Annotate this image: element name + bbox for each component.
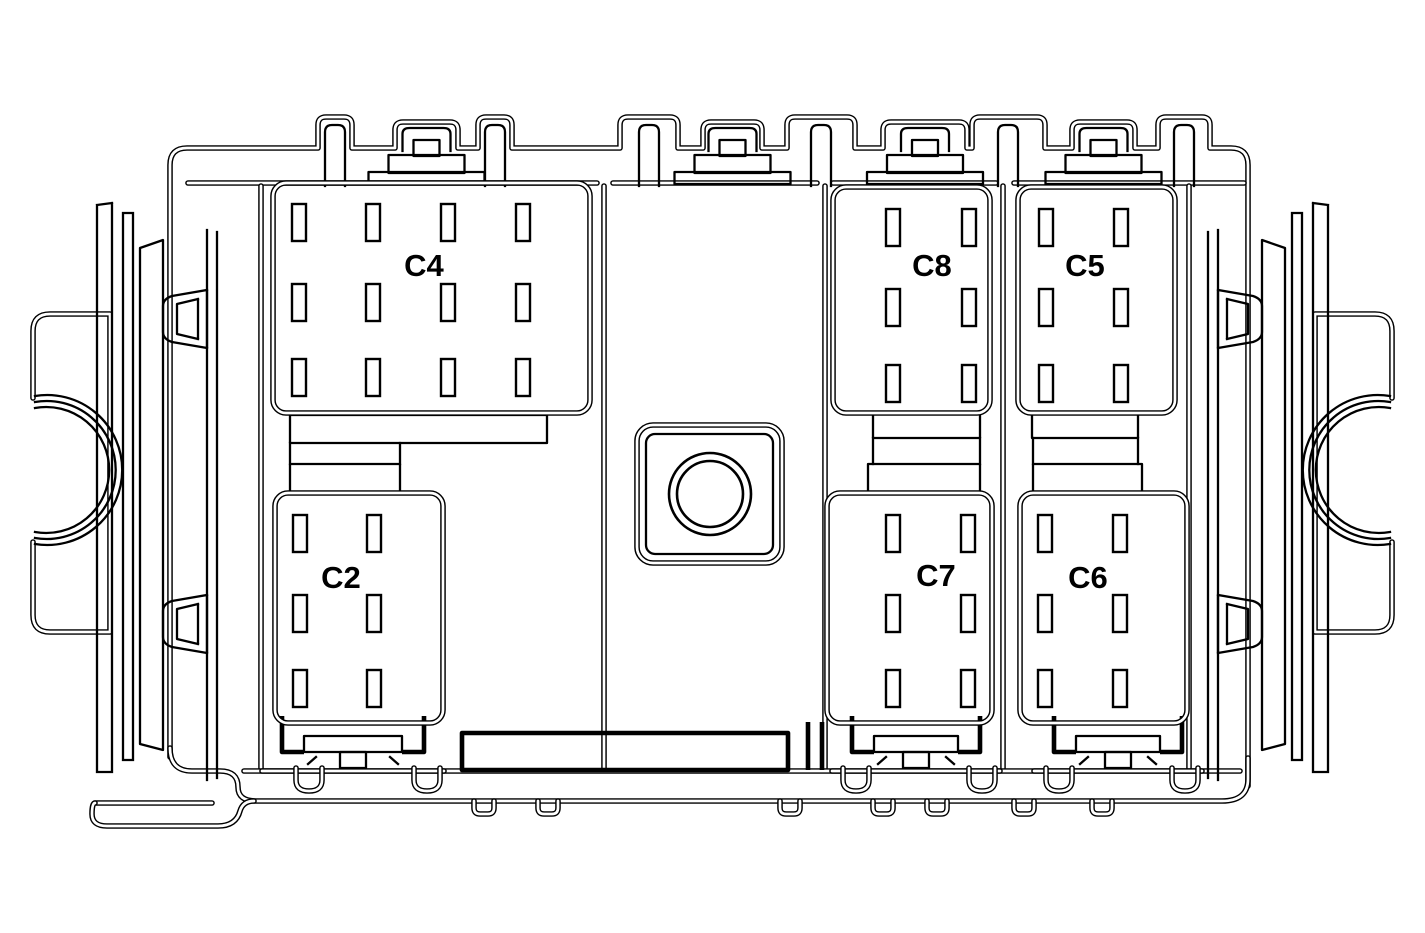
connector-c6: C6 xyxy=(1020,464,1202,791)
pin-slot xyxy=(1039,365,1053,402)
pin-slot xyxy=(366,359,380,396)
pin-slot xyxy=(886,595,900,632)
pin-slot xyxy=(1038,595,1052,632)
bolt-boss-outline-core xyxy=(637,425,782,563)
latch-pedestal xyxy=(304,736,402,752)
latch-pedestal-small xyxy=(1105,752,1131,768)
left-side-assembly xyxy=(33,203,217,780)
pin-slot xyxy=(516,284,530,321)
latch-pyramid xyxy=(1091,140,1117,156)
bottom-divider-bars xyxy=(808,722,822,770)
latch-pedestal-small xyxy=(903,752,929,768)
latch-pedestal xyxy=(1076,736,1160,752)
connector-c5-tab xyxy=(1032,413,1138,438)
pin-slot xyxy=(962,209,976,246)
pin-slot xyxy=(886,289,900,326)
tab-inner-channel xyxy=(1174,125,1194,186)
pin-slot xyxy=(293,515,307,552)
pin-slot xyxy=(367,670,381,707)
latch-pedestal-small xyxy=(340,752,366,768)
pin-slot xyxy=(1114,209,1128,246)
connector-c6-tab xyxy=(1033,464,1142,493)
latch-base xyxy=(887,155,963,173)
pin-slot xyxy=(367,515,381,552)
pin-slot xyxy=(886,209,900,246)
side-plate-column xyxy=(123,213,133,760)
connector-c4-label: C4 xyxy=(404,248,444,283)
pin-slot xyxy=(886,515,900,552)
side-latch-tab xyxy=(1218,595,1262,653)
pin-slot xyxy=(366,284,380,321)
mounting-bracket-core xyxy=(1315,314,1392,632)
connector-c2-label: C2 xyxy=(321,560,361,595)
connector-c4: C4 xyxy=(273,183,590,443)
connector-c7-latch xyxy=(832,716,1000,791)
pin-slot xyxy=(961,515,975,552)
pin-slot xyxy=(292,204,306,241)
bolt-boss-outline xyxy=(637,425,782,563)
pin-slot xyxy=(1113,595,1127,632)
right-side-assembly xyxy=(1208,203,1392,780)
connector-c8-tab xyxy=(873,413,980,438)
latch-pyramid xyxy=(720,140,746,156)
connector-c5: C5 xyxy=(1018,187,1175,438)
pin-slot xyxy=(292,284,306,321)
center-bolt-boss xyxy=(637,425,782,563)
connector-c7: C7 xyxy=(827,464,1000,791)
bottom-details xyxy=(462,722,822,770)
latch-pyramid xyxy=(912,140,938,156)
bolt-hole-inner xyxy=(677,461,743,527)
pin-slot xyxy=(1113,515,1127,552)
connector-c8-label: C8 xyxy=(912,248,952,283)
connector-c6-label: C6 xyxy=(1068,560,1108,595)
pin-slot xyxy=(366,204,380,241)
pin-slot xyxy=(293,670,307,707)
connector-c4-tab xyxy=(290,415,547,443)
connector-c8: C8 xyxy=(833,187,990,438)
pin-slot xyxy=(441,204,455,241)
mounting-bracket xyxy=(33,314,110,632)
pin-slot xyxy=(292,359,306,396)
connector-c2-latch xyxy=(262,716,444,791)
side-inner-lines xyxy=(207,230,217,780)
pin-slot xyxy=(1113,670,1127,707)
connector-c5-label: C5 xyxy=(1065,248,1105,283)
pin-slot xyxy=(293,595,307,632)
side-latch-tab xyxy=(1218,290,1262,348)
housing-top-profile xyxy=(170,117,1248,786)
pin-slot xyxy=(962,365,976,402)
fuse-block-line-drawing: C4C8C5C2C7C6 xyxy=(0,0,1425,933)
bolt-hole-outer xyxy=(669,453,751,535)
pin-slot xyxy=(886,670,900,707)
pin-slot xyxy=(516,359,530,396)
tab-inner-channel xyxy=(998,125,1018,186)
pin-slot xyxy=(1039,209,1053,246)
tab-inner-channel xyxy=(811,125,831,186)
tab-inner-channel xyxy=(639,125,659,186)
latch-ticks xyxy=(1080,757,1156,764)
mounting-bracket xyxy=(1315,314,1392,632)
connector-c7-label: C7 xyxy=(916,558,956,593)
bottom-center-plate xyxy=(462,733,788,770)
pin-slot xyxy=(367,595,381,632)
pin-slot xyxy=(1038,670,1052,707)
latch-ticks xyxy=(878,757,954,764)
latch-base xyxy=(1066,155,1142,173)
pin-slot xyxy=(1039,289,1053,326)
side-slant-panel xyxy=(140,240,163,750)
connectors-layer: C4C8C5C2C7C6 xyxy=(262,183,1202,791)
pin-slot xyxy=(886,365,900,402)
pin-slot xyxy=(1114,365,1128,402)
latch-ticks xyxy=(308,757,398,764)
housing-bottom-profile xyxy=(170,748,1248,801)
pin-slot xyxy=(441,284,455,321)
latch-base xyxy=(389,155,465,173)
connector-c6-latch xyxy=(1034,716,1202,791)
connector-c2-tab xyxy=(290,464,400,493)
pin-slot xyxy=(961,670,975,707)
connector-c2: C2 xyxy=(262,464,444,791)
fuse-block-connector-diagram: C4C8C5C2C7C6 xyxy=(0,0,1425,933)
housing-outline xyxy=(92,117,1248,826)
tab-inner-channel xyxy=(325,125,345,186)
tab-inner-channel xyxy=(485,125,505,186)
side-slant-panel xyxy=(1262,240,1285,750)
connector-c7-tab xyxy=(868,464,980,493)
pin-slot xyxy=(961,595,975,632)
housing-top-profile-core xyxy=(170,117,1248,786)
side-plate-column xyxy=(1292,213,1302,760)
pin-slot xyxy=(516,204,530,241)
pin-slot xyxy=(1114,289,1128,326)
mounting-bracket-core xyxy=(33,314,110,632)
pin-slot xyxy=(962,289,976,326)
side-inner-lines xyxy=(1208,230,1218,780)
latch-pyramid xyxy=(414,140,440,156)
latch-base xyxy=(695,155,771,173)
latch-pedestal xyxy=(874,736,958,752)
pin-slot xyxy=(1038,515,1052,552)
connector-c4-body-core xyxy=(273,183,590,413)
housing-bottom-profile-core xyxy=(170,748,1248,801)
pin-slot xyxy=(441,359,455,396)
connector-c4-body xyxy=(273,183,590,413)
